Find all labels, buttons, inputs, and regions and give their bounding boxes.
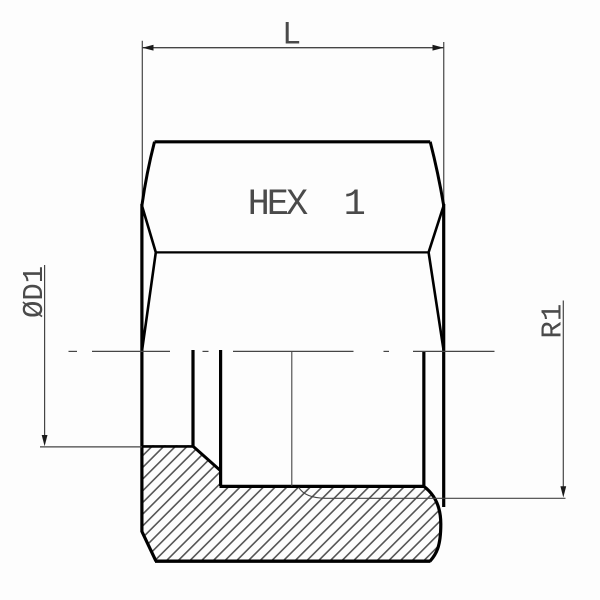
svg-text:R1: R1 — [537, 304, 570, 339]
svg-text:ØD1: ØD1 — [18, 266, 51, 318]
svg-text:HEX 1: HEX 1 — [248, 184, 365, 226]
svg-text:L: L — [282, 17, 301, 54]
